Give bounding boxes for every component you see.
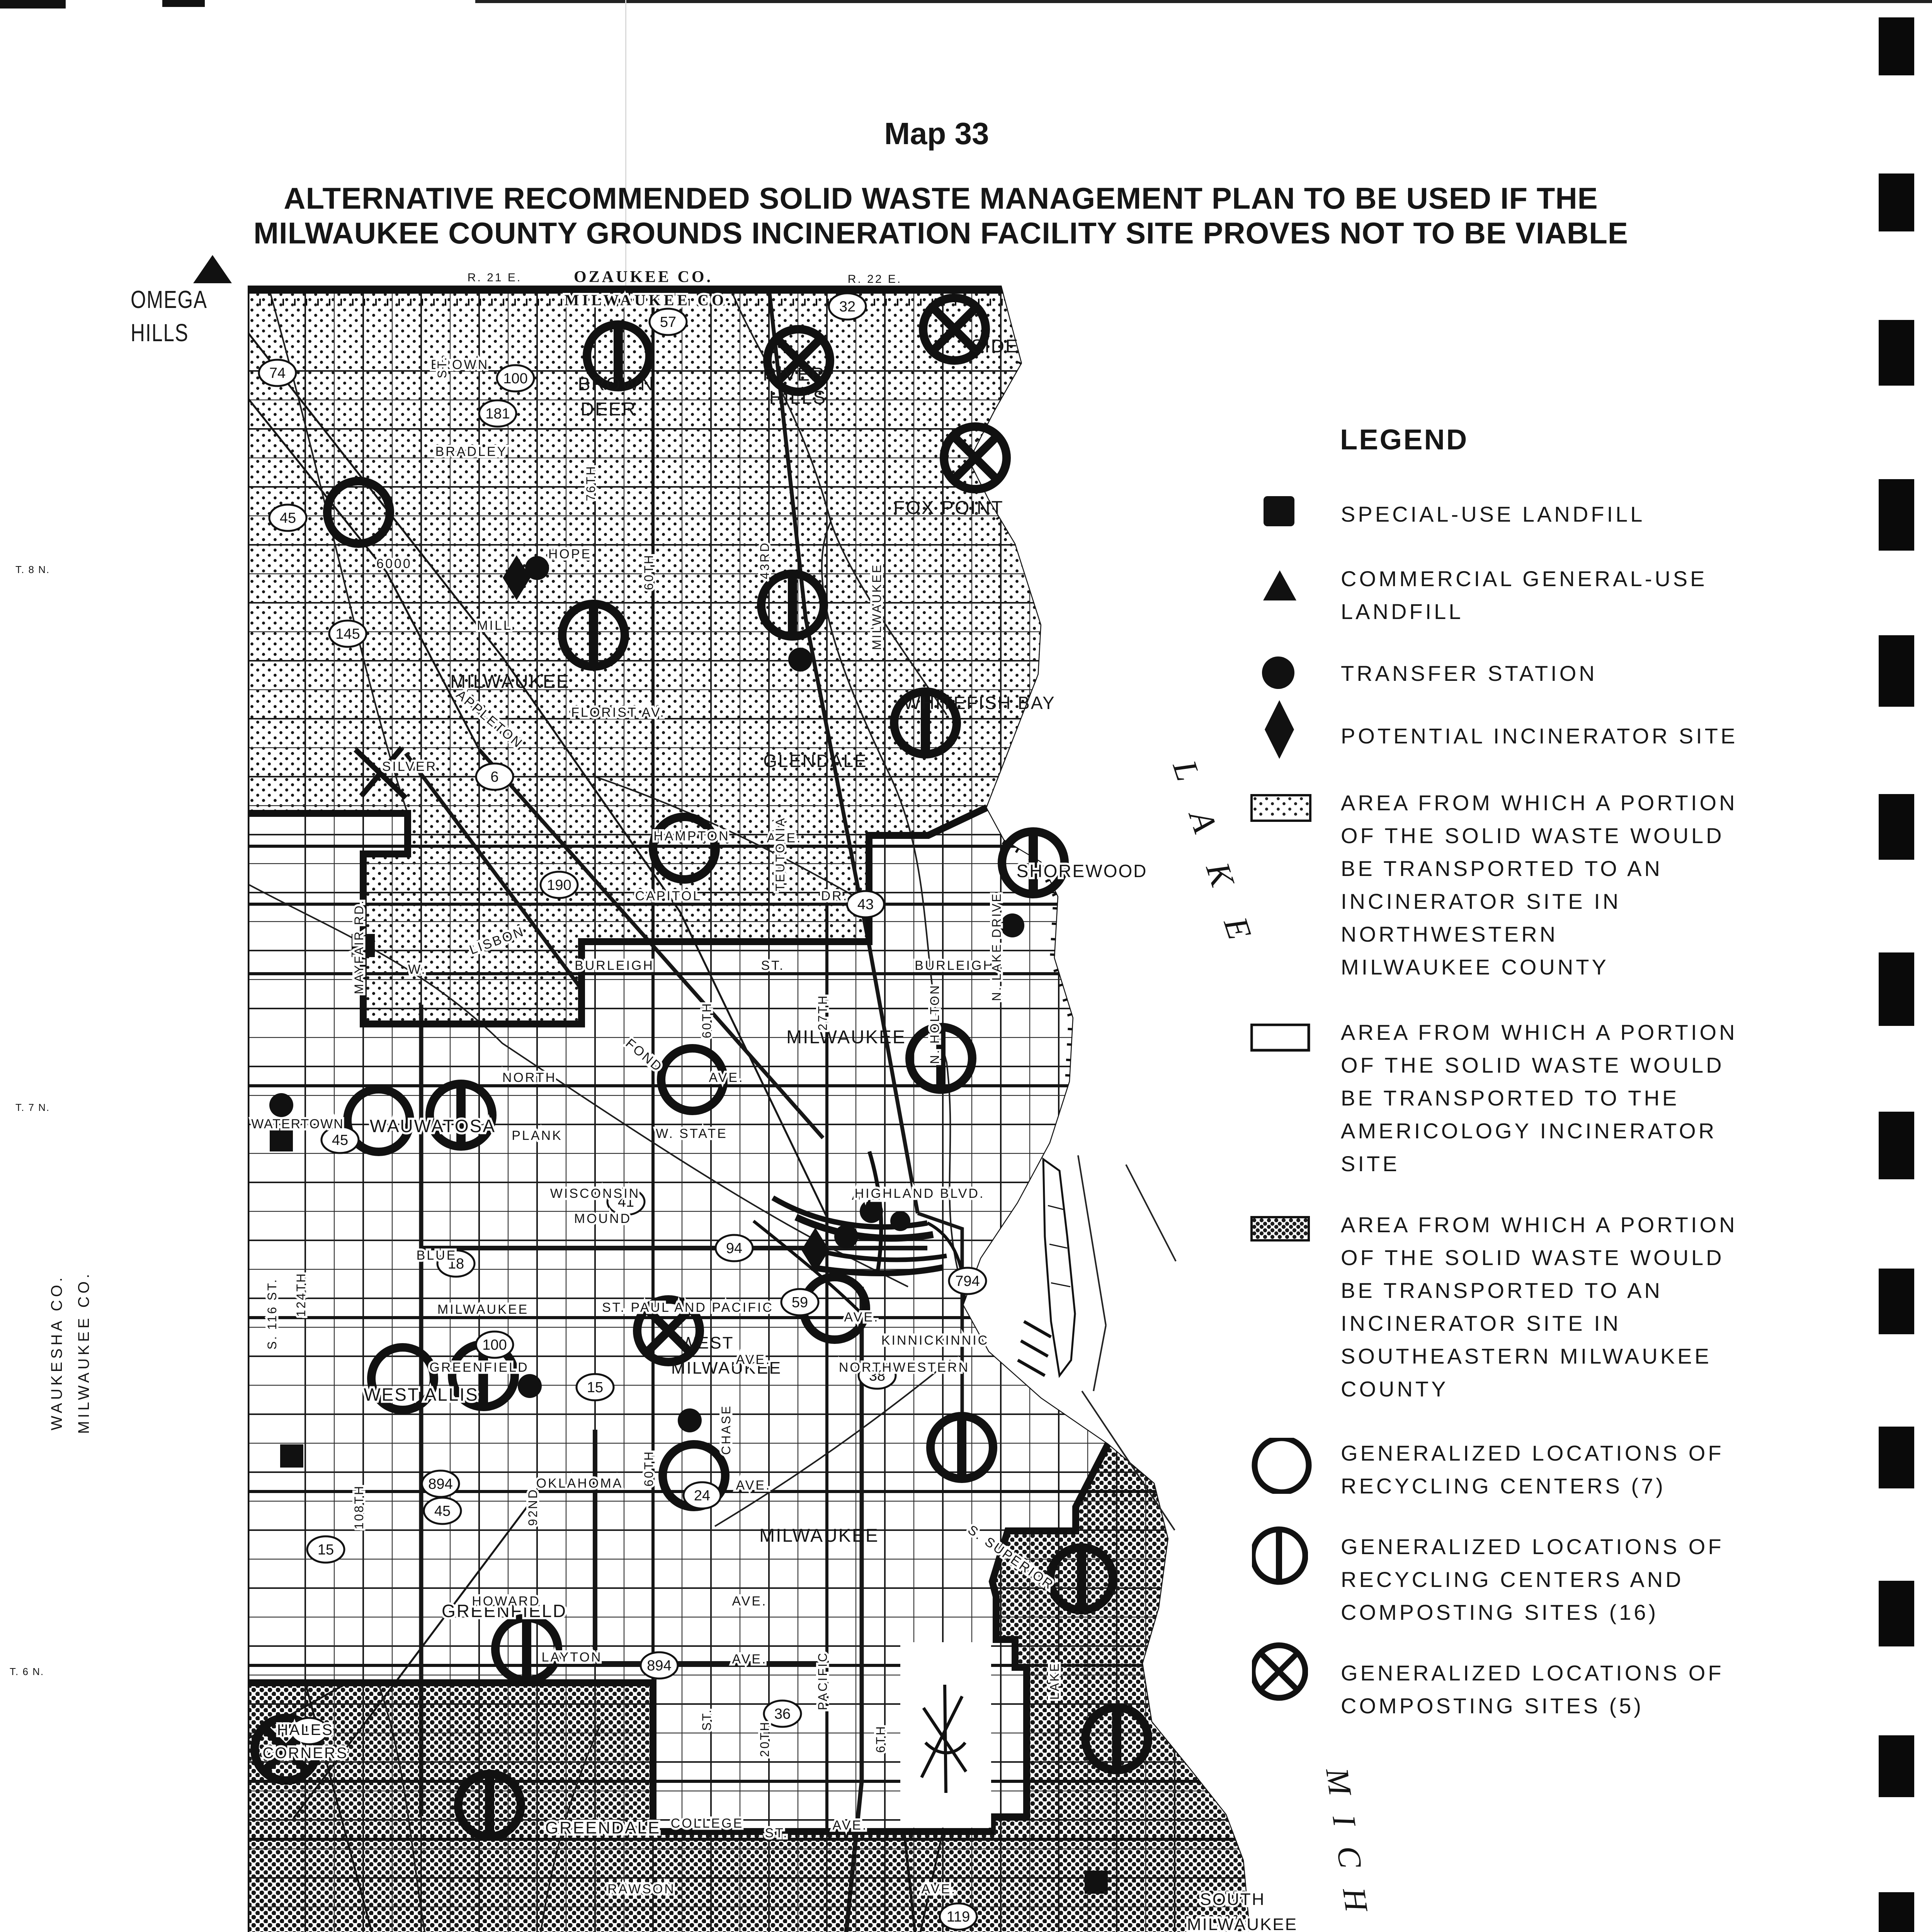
svg-text:59: 59 [792,1294,808,1311]
svg-text:100: 100 [503,371,527,387]
svg-text:NORTH: NORTH [502,1070,556,1085]
svg-text:32: 32 [839,299,855,315]
svg-text:74: 74 [269,365,286,381]
svg-text:6TH: 6TH [874,1725,888,1753]
svg-text:WAUWATOSA: WAUWATOSA [370,1116,496,1136]
svg-text:181: 181 [485,406,510,422]
svg-text:WISCONSIN: WISCONSIN [550,1186,640,1201]
svg-text:T. 8 N.: T. 8 N. [15,564,50,575]
svg-text:CHASE: CHASE [719,1405,733,1455]
svg-text:HIGHLAND BLVD.: HIGHLAND BLVD. [855,1186,985,1201]
svg-text:DR.: DR. [821,889,849,903]
svg-text:794: 794 [955,1273,980,1289]
svg-text:AVE.: AVE. [709,1070,744,1085]
svg-text:W.: W. [408,962,427,977]
svg-text:WAUKESHA CO.: WAUKESHA CO. [48,1274,65,1430]
svg-text:43RD: 43RD [758,541,772,579]
svg-text:GREENFIELD: GREENFIELD [429,1360,529,1375]
svg-text:MILWAUKEE CO.: MILWAUKEE CO. [565,291,734,309]
svg-text:MILWAUKEE: MILWAUKEE [437,1302,529,1317]
svg-text:MOUND: MOUND [574,1211,631,1226]
svg-text:24: 24 [694,1488,710,1504]
svg-text:6000: 6000 [376,556,412,571]
svg-text:MILWAUKEE: MILWAUKEE [450,672,570,692]
svg-text:HALES: HALES [277,1721,333,1738]
svg-text:WHITEFISH BAY: WHITEFISH BAY [903,693,1055,713]
svg-text:45: 45 [332,1132,348,1148]
svg-text:190: 190 [547,877,571,893]
svg-text:CORNERS: CORNERS [262,1745,348,1762]
svg-text:15: 15 [587,1379,603,1396]
svg-text:W. STATE: W. STATE [656,1126,728,1141]
svg-text:RAWSON: RAWSON [607,1882,675,1896]
svg-text:MILWAUKEE: MILWAUKEE [870,563,884,650]
svg-text:M I C H I G A N: M I C H I G A N [1319,1765,1397,1932]
svg-text:AVE.: AVE. [732,1594,767,1609]
svg-text:TEUTONIA: TEUTONIA [773,816,787,891]
svg-text:MILWAUKEE: MILWAUKEE [786,1027,906,1048]
svg-text:SHOREWOOD: SHOREWOOD [1017,861,1148,881]
svg-text:BRADLEY: BRADLEY [435,444,508,459]
svg-text:ST.: ST. [435,356,449,378]
svg-text:CAPITOL: CAPITOL [635,889,702,903]
svg-text:76TH: 76TH [584,465,598,501]
svg-text:27TH: 27TH [816,994,830,1031]
svg-text:36: 36 [774,1706,791,1722]
svg-text:OKLAHOMA: OKLAHOMA [536,1476,623,1491]
svg-text:MILWAUKEE: MILWAUKEE [759,1526,879,1546]
svg-text:MILWAUKEE CO.: MILWAUKEE CO. [75,1271,92,1434]
svg-text:43: 43 [857,896,874,913]
svg-text:R. 22 E.: R. 22 E. [848,273,902,286]
svg-text:ST.: ST. [765,1826,788,1840]
svg-text:AVE.: AVE. [736,1352,771,1367]
svg-text:ST. PAUL AND PACIFIC: ST. PAUL AND PACIFIC [602,1300,774,1315]
svg-text:NORTHWESTERN: NORTHWESTERN [839,1360,969,1375]
svg-text:RIVER: RIVER [763,364,825,385]
svg-text:AVE.: AVE. [736,1478,771,1493]
svg-text:T. 6 N.: T. 6 N. [10,1666,44,1677]
svg-text:COLLEGE: COLLEGE [671,1816,744,1831]
svg-text:60TH: 60TH [700,1002,714,1038]
svg-text:DEER: DEER [580,399,636,420]
svg-text:92ND: 92ND [526,1488,540,1526]
svg-text:119: 119 [947,1909,970,1925]
svg-text:PACIFIC: PACIFIC [816,1651,830,1710]
svg-text:AVE.: AVE. [732,1652,767,1667]
svg-text:N. HOLTON: N. HOLTON [928,984,942,1064]
svg-text:15: 15 [318,1542,334,1558]
svg-text:HILLS: HILLS [769,388,827,408]
svg-text:FOX POINT: FOX POINT [893,498,1004,518]
svg-text:AVE.: AVE. [844,1310,879,1325]
svg-text:HAMPTON: HAMPTON [653,829,730,844]
svg-text:AVE.: AVE. [833,1818,868,1833]
svg-text:S. 116 ST.: S. 116 ST. [265,1278,279,1349]
svg-text:LAKE: LAKE [1048,1662,1061,1700]
svg-text:60TH: 60TH [642,554,656,590]
svg-text:GREENDALE: GREENDALE [545,1818,660,1837]
svg-text:6: 6 [490,769,498,785]
svg-text:WATERTOWN: WATERTOWN [251,1117,344,1131]
svg-text:HOPE: HOPE [548,547,592,561]
svg-text:57: 57 [660,314,676,330]
svg-text:894: 894 [647,1658,671,1674]
svg-text:108TH: 108TH [352,1485,366,1529]
svg-text:N. LAKE DRIVE: N. LAKE DRIVE [990,892,1003,1001]
svg-text:FLORIST AV.: FLORIST AV. [571,705,665,720]
svg-text:LAYTON: LAYTON [542,1650,602,1665]
svg-text:SILVER: SILVER [382,759,437,774]
svg-text:WEST: WEST [680,1333,734,1352]
svg-text:OZAUKEE CO.: OZAUKEE CO. [574,268,713,286]
svg-text:20TH: 20TH [758,1721,772,1757]
svg-text:ST.: ST. [700,1708,714,1731]
svg-text:45: 45 [434,1503,451,1519]
svg-text:BURLEIGH: BURLEIGH [575,958,654,973]
svg-text:T. 7 N.: T. 7 N. [15,1102,50,1113]
svg-text:SOUTH: SOUTH [1200,1890,1265,1909]
svg-text:45: 45 [280,510,296,526]
svg-text:MAYFAIR RD.: MAYFAIR RD. [352,899,366,994]
svg-text:100: 100 [482,1337,507,1353]
svg-text:AVE.: AVE. [922,1882,957,1896]
svg-text:MILWAUKEE: MILWAUKEE [1187,1915,1298,1932]
svg-text:WEST ALLIS: WEST ALLIS [364,1384,479,1405]
svg-text:94: 94 [726,1240,742,1257]
svg-text:GLENDALE: GLENDALE [763,751,867,771]
svg-text:124TH: 124TH [294,1272,308,1317]
svg-text:60TH: 60TH [642,1450,656,1486]
svg-text:PLANK: PLANK [512,1128,563,1143]
svg-text:R. 21 E.: R. 21 E. [468,271,522,284]
svg-text:BURLEIGH: BURLEIGH [915,958,994,973]
svg-text:BROWN: BROWN [578,374,655,395]
svg-text:L A K E: L A K E [1165,755,1262,956]
svg-text:ST.: ST. [761,958,784,973]
svg-text:BLUE: BLUE [417,1248,457,1263]
svg-text:KINNICKINNIC: KINNICKINNIC [881,1333,989,1348]
svg-text:145: 145 [335,626,360,642]
svg-text:MILL: MILL [477,618,512,633]
svg-text:894: 894 [428,1476,452,1492]
svg-text:HOWARD: HOWARD [472,1594,541,1609]
svg-text:SIDE: SIDE [971,336,1019,357]
